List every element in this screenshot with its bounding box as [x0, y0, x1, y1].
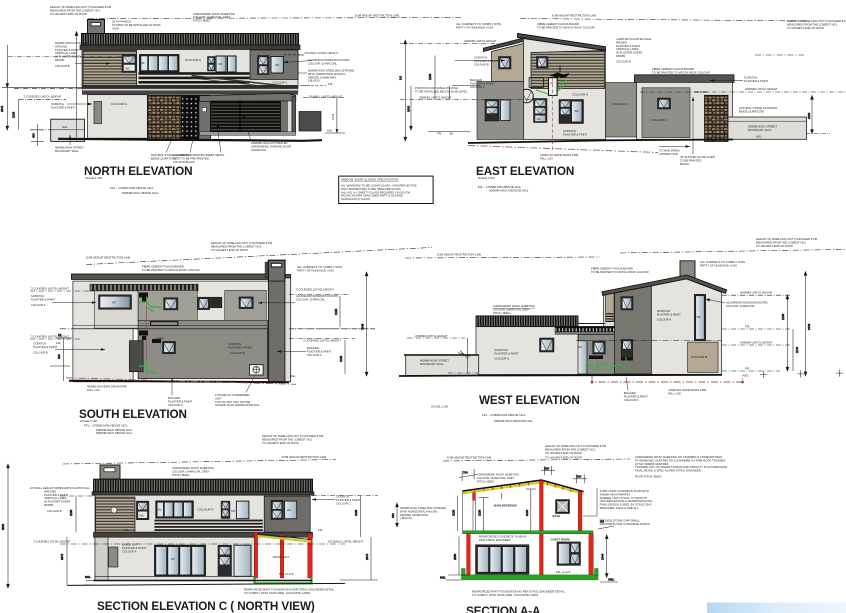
svg-text:W0: W0 [537, 117, 542, 121]
svg-text:500MM MAX ABOVE NGL: 500MM MAX ABOVE NGL [122, 191, 159, 195]
svg-text:2400MM LINTOL HEIGHT: 2400MM LINTOL HEIGHT [415, 334, 448, 338]
svg-text:400: 400 [32, 133, 36, 138]
svg-text:940: 940 [391, 513, 395, 518]
svg-text:GROUND FLOOR CONCRETE ROOFS: GROUND FLOOR CONCRETE ROOFS [600, 522, 650, 526]
svg-text:2138: 2138 [428, 73, 432, 80]
svg-text:D6: D6 [219, 62, 223, 66]
svg-text:COLOUR C: COLOUR C [168, 403, 183, 407]
svg-text:TO BE PAINTED TO MATCH ROOF CO: TO BE PAINTED TO MATCH ROOF COLOUR [142, 268, 200, 272]
svg-text:COLOUR BLACK: COLOUR BLACK [173, 160, 195, 164]
svg-text:8.5M HEIGHT RESTRICTION LINE: 8.5M HEIGHT RESTRICTION LINE [437, 253, 481, 257]
svg-text:SANS10137(2) CLASS: SANS10137(2) CLASS [341, 197, 370, 201]
svg-text:TO HIGHEST END OF ROOF: TO HIGHEST END OF ROOF [545, 451, 582, 455]
svg-text:500MM MAX ABOVE NGL: 500MM MAX ABOVE NGL [96, 431, 133, 435]
svg-text:NGL: NGL [608, 578, 614, 582]
svg-text:COLOUR: CHARCOAL: COLOUR: CHARCOAL [308, 61, 338, 65]
svg-text:SPECIFIED: SANS & SDE ALL: SPECIFIED: SANS & SDE ALL [600, 506, 639, 510]
svg-text:FINAL DETAIL & SPEC AS PER STR: FINAL DETAIL & SPEC AS PER STRUC ENGINEE… [635, 469, 701, 473]
svg-text:ROOF PITCH: 8DEG: ROOF PITCH: 8DEG [635, 475, 661, 479]
svg-text:COLOUR B: COLOUR B [616, 60, 631, 64]
svg-text:CB: CB [449, 132, 453, 136]
svg-text:2400: 2400 [807, 112, 811, 119]
svg-text:COLOUR B: COLOUR B [230, 351, 245, 355]
svg-text:COLOUR B: COLOUR B [55, 64, 70, 68]
svg-text:2/6 WALL HEIGHT 600MM ARTICUL: 2/6 WALL HEIGHT 600MM ARTICULATION ALL [30, 486, 90, 490]
svg-text:PITCH: 8DEG: PITCH: 8DEG [477, 479, 495, 483]
svg-text:BOUNDARY WALL: BOUNDARY WALL [55, 149, 79, 153]
svg-text:TO BE PAINTED TO MATCH ROOF CO: TO BE PAINTED TO MATCH ROOF COLOUR [591, 270, 649, 274]
svg-text:2138: 2138 [334, 308, 338, 315]
svg-text:BEIGE QUARTZITE: BEIGE QUARTZITE [739, 109, 764, 113]
svg-text:3 COURSES LINTEL HEIGHT: 3 COURSES LINTEL HEIGHT [33, 540, 71, 544]
svg-text:HIGHER THAN 400MM FROM NGL: HIGHER THAN 400MM FROM NGL [215, 403, 260, 407]
svg-text:NGL: NGL [743, 374, 749, 378]
svg-text:TO COMPLY WITH SANS (SDE - DOL: TO COMPLY WITH SANS (SDE - DOLOMITE LAND… [244, 591, 310, 595]
svg-text:3136: 3136 [525, 509, 529, 516]
svg-text:TO HIGHEST END OF ROOF: TO HIGHEST END OF ROOF [211, 248, 248, 252]
svg-text:SECTION ELEVATION C ( NORTH VI: SECTION ELEVATION C ( NORTH VIEW) [97, 600, 315, 613]
svg-text:8.5M HEIGHT RESTRICTION LINE: 8.5M HEIGHT RESTRICTION LINE [355, 14, 399, 18]
svg-text:COLOUR A: COLOUR A [31, 303, 46, 307]
svg-text:FFL +0.170: FFL +0.170 [279, 572, 294, 576]
svg-text:DL: DL [158, 508, 162, 512]
svg-text:FFL: FFL [124, 528, 129, 532]
svg-text:COLOUR C: COLOUR C [273, 81, 288, 85]
svg-text:NGL: NGL [62, 125, 68, 129]
svg-text:( BLACK): ( BLACK) [308, 79, 320, 83]
svg-text:500: 500 [577, 475, 582, 479]
svg-text:TO BE INSTALLED BELOW SLAB LEV: TO BE INSTALLED BELOW SLAB LEVEL [415, 89, 468, 93]
svg-text:8.5M HEIGHT RESTRICTION LINE: 8.5M HEIGHT RESTRICTION LINE [282, 455, 326, 459]
svg-text:GUEST ROOM: GUEST ROOM [551, 538, 571, 542]
svg-text:PITCH: 8DEG: PITCH: 8DEG [193, 19, 211, 23]
svg-text:PLASTER & PAINT: PLASTER & PAINT [228, 345, 252, 349]
svg-text:3 COURSES LINTOL HEIGHT: 3 COURSES LINTOL HEIGHT [303, 339, 341, 343]
svg-text:8500: 8500 [1, 523, 5, 530]
svg-text:SECTION A-A: SECTION A-A [466, 605, 541, 613]
svg-text:W1: W1 [287, 508, 292, 512]
svg-text:PARTY OF NUISANCE +0.60: PARTY OF NUISANCE +0.60 [297, 268, 334, 272]
svg-text:2558: 2558 [453, 553, 457, 560]
svg-text:2144: 2144 [795, 346, 799, 353]
svg-text:COLOUR A: COLOUR A [111, 102, 128, 106]
svg-text:PITCH: 8DEG: PITCH: 8DEG [493, 311, 511, 315]
svg-text:600MM: 600MM [616, 54, 626, 58]
svg-text:COLOUR B: COLOUR B [474, 62, 489, 66]
svg-text:COLOUR A: COLOUR A [495, 357, 510, 361]
svg-text:FFL: FFL [745, 325, 750, 329]
svg-text:2400MM LINTOL HEIGHT: 2400MM LINTOL HEIGHT [740, 341, 773, 345]
svg-text:TO HIGHEST END OF ROOF: TO HIGHEST END OF ROOF [262, 441, 299, 445]
svg-text:PLASTER & PAINT: PLASTER & PAINT [657, 312, 681, 316]
svg-text:BATH: BATH [553, 514, 561, 518]
svg-text:500: 500 [545, 467, 550, 471]
svg-text:COLOUR C: COLOUR C [612, 102, 629, 106]
svg-text:WEST ELEVATION: WEST ELEVATION [479, 394, 580, 407]
svg-text:TO BE PAINTED TO MATCH ROOF CO: TO BE PAINTED TO MATCH ROOF COLOUR [537, 25, 595, 29]
svg-text:FALL 1:60: FALL 1:60 [540, 156, 553, 160]
svg-text:NGL: NGL [85, 575, 91, 579]
svg-text:COLOUR C: COLOUR C [624, 398, 639, 402]
svg-text:3 COURSES LINTOL HEIGHT: 3 COURSES LINTOL HEIGHT [31, 287, 69, 291]
svg-text:2644: 2644 [365, 553, 369, 560]
svg-text:SCALE 1:100: SCALE 1:100 [85, 176, 102, 180]
svg-text:W4: W4 [488, 115, 493, 119]
svg-text:COLOUR B: COLOUR B [47, 509, 62, 513]
svg-text:ROOFLIGHT: ROOFLIGHT [273, 555, 290, 559]
svg-text:NGL: NGL [756, 135, 762, 139]
svg-text:BLACK: BLACK [680, 162, 689, 166]
svg-text:COLOUR B: COLOUR B [33, 351, 48, 355]
svg-text:W2: W2 [140, 514, 145, 518]
svg-text:W0: W0 [575, 109, 580, 113]
svg-text:8.5M HEIGHT RESTRICTION LINE: 8.5M HEIGHT RESTRICTION LINE [447, 456, 491, 460]
svg-text:PARTY OF NUISANCE +0.60: PARTY OF NUISANCE +0.60 [700, 263, 737, 267]
svg-text:COLOUR: CHARCOAL: COLOUR: CHARCOAL [296, 297, 326, 301]
svg-text:COLOUR A: COLOUR A [657, 318, 672, 322]
svg-text:2/8: 2/8 [600, 520, 604, 524]
svg-text:PLASTER & PAINT: PLASTER & PAINT [495, 351, 519, 355]
svg-text:NGL: NGL [290, 374, 296, 378]
svg-text:COLOUR B: COLOUR B [691, 355, 707, 359]
svg-text:FFL - 170MM MIN ABOVE NGL: FFL - 170MM MIN ABOVE NGL [110, 186, 154, 190]
svg-text:BOUNDARY WALL: BOUNDARY WALL [420, 362, 444, 366]
svg-text:D6: D6 [232, 509, 236, 513]
svg-text:2400: 2400 [407, 105, 411, 112]
svg-text:COLOUR C: COLOUR C [307, 353, 322, 357]
svg-text:2/6 SMALL LINTEL HEIGHT: 2/6 SMALL LINTEL HEIGHT [328, 540, 364, 544]
svg-text:2444: 2444 [331, 113, 335, 120]
svg-text:500MM MAX ABOOVE NGL: 500MM MAX ABOOVE NGL [494, 419, 533, 423]
svg-text:FALL 1:60: FALL 1:60 [87, 388, 100, 392]
svg-text:NGL: NGL [440, 576, 446, 580]
svg-text:SCALE 1:100: SCALE 1:100 [431, 405, 448, 409]
svg-text:W7: W7 [112, 301, 117, 305]
svg-text:PLASTER & PAINT: PLASTER & PAINT [744, 79, 768, 83]
svg-text:2644: 2644 [0, 105, 4, 112]
svg-text:NGL: NGL [327, 129, 333, 133]
svg-text:2/6 WALL LINTEL HEIGHT: 2/6 WALL LINTEL HEIGHT [305, 51, 339, 55]
svg-text:2138: 2138 [452, 509, 456, 516]
svg-text:FFL: FFL [328, 82, 333, 86]
svg-text:COLOUR A: COLOUR A [572, 93, 589, 97]
svg-text:FALL 1:60: FALL 1:60 [668, 391, 681, 395]
svg-text:400: 400 [57, 354, 61, 359]
svg-text:FFL - 170MM MIN ABOVE NGL: FFL - 170MM MIN ABOVE NGL [482, 413, 526, 417]
svg-text:BOUNDARY WALL: BOUNDARY WALL [748, 128, 772, 132]
svg-text:8448: 8448 [807, 323, 811, 330]
svg-text:600MM: 600MM [44, 503, 54, 507]
svg-text:TO HIGHEST END OF ROOF: TO HIGHEST END OF ROOF [756, 244, 793, 248]
svg-text:PLASTER & PAINT: PLASTER & PAINT [51, 105, 75, 109]
svg-text:2138: 2138 [339, 355, 343, 362]
svg-text:COLOUR: CHARCOAL: COLOUR: CHARCOAL [726, 304, 756, 308]
svg-text:SYSTEM TO BE INSTALLED IN ROOF: SYSTEM TO BE INSTALLED IN ROOF [112, 23, 161, 27]
svg-text:D2: D2 [579, 345, 583, 349]
svg-text:2138: 2138 [69, 509, 73, 516]
svg-text:CHARCOAL: CHARCOAL [251, 148, 267, 152]
svg-text:SCALE 1:100: SCALE 1:100 [80, 419, 97, 423]
svg-text:( BLACK): ( BLACK) [400, 516, 412, 520]
svg-text:2444: 2444 [601, 553, 605, 560]
svg-text:FFL +0.170: FFL +0.170 [556, 570, 571, 574]
svg-text:2400MM LINTOL HEIGHT: 2400MM LINTOL HEIGHT [419, 96, 452, 100]
svg-text:PLASTER & PAINT: PLASTER & PAINT [31, 297, 55, 301]
svg-text:FFL: FFL [318, 528, 323, 532]
svg-text:PLASTER & PAINT: PLASTER & PAINT [33, 345, 57, 349]
svg-text:FFL: FFL [437, 132, 442, 136]
svg-text:600MM: 600MM [55, 58, 65, 62]
svg-text:2400MM LINTOL HEIGHT: 2400MM LINTOL HEIGHT [745, 87, 778, 91]
svg-text:DL: DL [142, 61, 146, 65]
svg-text:WINDOW /DOOR GLAZING SPECIFICA: WINDOW /DOOR GLAZING SPECIFICATION [341, 178, 398, 182]
svg-text:W2: W2 [126, 67, 131, 71]
svg-text:PITCH: 8DEG: PITCH: 8DEG [172, 473, 190, 477]
svg-text:2138: 2138 [478, 509, 482, 516]
svg-text:COLOUR C: COLOUR C [651, 118, 668, 122]
svg-text:COLOUR A: COLOUR A [198, 508, 215, 512]
svg-text:500MM MAX A BOOVE NGL: 500MM MAX A BOOVE NGL [489, 189, 529, 193]
svg-text:CONNECTION: CONNECTION [659, 152, 678, 156]
svg-text:2138: 2138 [781, 313, 785, 320]
svg-text:FFL: FFL [56, 341, 61, 345]
svg-text:VOID: VOID [112, 26, 119, 30]
svg-text:TO HIGHEST END OF ROOF: TO HIGHEST END OF ROOF [545, 456, 582, 460]
svg-text:COLOUR A: COLOUR A [122, 549, 137, 553]
svg-text:2400MM LINTOL HEIGHT: 2400MM LINTOL HEIGHT [740, 291, 773, 295]
svg-text:FFL - 170MM MIN ABOVE NGL: FFL - 170MM MIN ABOVE NGL [84, 423, 128, 427]
svg-text:FFL: FFL [745, 367, 750, 371]
svg-text:D3: D3 [171, 557, 175, 561]
svg-text:W1: W1 [275, 63, 280, 67]
svg-text:COLOUR C: COLOUR C [336, 501, 351, 505]
svg-text:TO COMPLY WITH SANS (SDE - DOL: TO COMPLY WITH SANS (SDE - DOLOMITE LAND… [472, 593, 538, 597]
svg-text:2X: 2X [58, 333, 62, 337]
svg-text:COLOUR A: COLOUR A [185, 58, 202, 62]
svg-text:SCALE 1:100: SCALE 1:100 [478, 176, 495, 180]
svg-text:8.5M HEIGHT RESTRICTION LINE: 8.5M HEIGHT RESTRICTION LINE [552, 14, 596, 18]
svg-text:W6: W6 [697, 315, 702, 319]
svg-text:MAIN BEDROOM: MAIN BEDROOM [494, 504, 517, 508]
svg-text:W3: W3 [212, 301, 217, 305]
svg-text:2644: 2644 [60, 553, 64, 560]
svg-text:2138: 2138 [12, 111, 16, 118]
svg-text:PLASTER & PAINT: PLASTER & PAINT [563, 132, 587, 136]
svg-text:3 COURSES LINTOL HEIGHT: 3 COURSES LINTOL HEIGHT [24, 95, 62, 99]
svg-text:8.5M HEIGHT RESTRICTION LINE: 8.5M HEIGHT RESTRICTION LINE [86, 256, 130, 260]
svg-text:2138: 2138 [354, 509, 358, 516]
svg-text:3 COURSES LINTOL HEIGHT: 3 COURSES LINTOL HEIGHT [296, 288, 334, 292]
svg-text:TO HIGHEST END OF ROOF: TO HIGHEST END OF ROOF [787, 26, 824, 30]
svg-text:700: 700 [463, 471, 468, 475]
svg-text:PARTY OF NUISANCE +0.60: PARTY OF NUISANCE +0.60 [456, 25, 493, 29]
svg-text:TO HIGHEST END OF ROOF: TO HIGHEST END OF ROOF [50, 12, 87, 16]
svg-text:PER STRUC ENGINEER: PER STRUC ENGINEER [479, 538, 511, 542]
svg-text:TO BE PAINTED TO MATCH ROOF CO: TO BE PAINTED TO MATCH ROOF COLOUR [652, 70, 710, 74]
svg-text:8.5: 8.5 [399, 76, 403, 80]
svg-text:2400MM LINTOL HEIGHT: 2400MM LINTOL HEIGHT [464, 39, 497, 43]
